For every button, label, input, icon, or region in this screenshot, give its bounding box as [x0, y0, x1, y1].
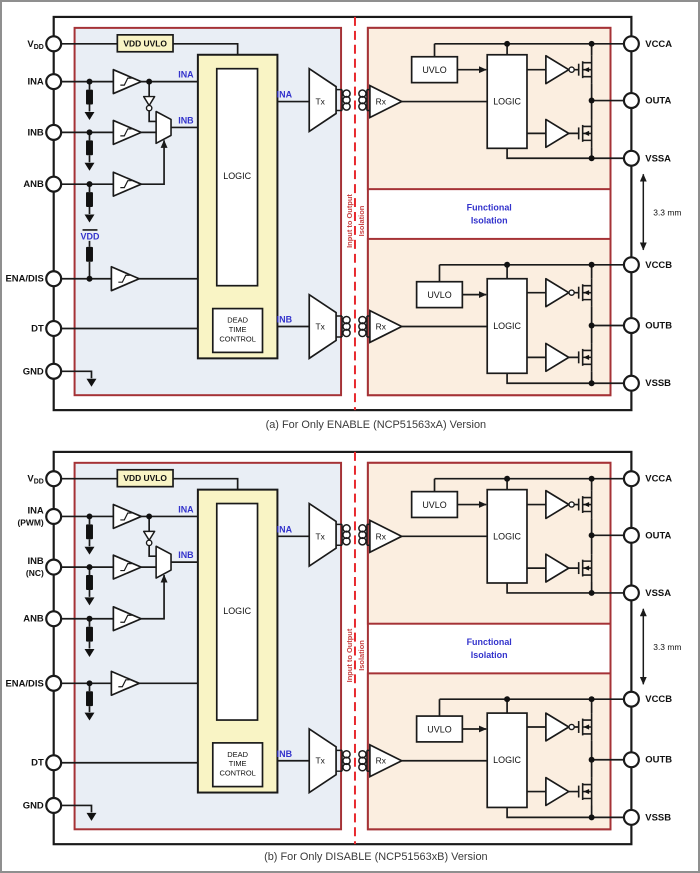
inverter-bubble: [569, 502, 574, 507]
pin-outa: [624, 528, 639, 543]
pin-label-vccb: VCCB: [645, 260, 672, 271]
signal-inb-tx: INB: [277, 749, 293, 759]
signal-ina: INA: [178, 504, 194, 514]
vdd-uvlo-label: VDD UVLO: [123, 38, 167, 48]
signal-ina-tx: INA: [277, 524, 293, 534]
pin-gnd: [46, 798, 61, 813]
rx-label-a: Rx: [376, 97, 387, 107]
pin-label-ena-dis: ENA/DIS: [6, 274, 44, 285]
figure-frame: 3.3 mm VDD INA INB ANB ENA/DIS DT GND VC…: [0, 0, 700, 873]
pin-label-vdd: VDD: [27, 39, 43, 51]
resistor-inb: [86, 140, 93, 155]
functional-isolation-line1: Functional: [467, 637, 512, 647]
uvlo-label-a: UVLO: [422, 65, 446, 75]
logic-label-a: LOGIC: [493, 531, 521, 541]
pin-label-ina: INA: [27, 505, 43, 516]
pin-label-outb: OUTB: [645, 755, 672, 766]
pin-gnd: [46, 364, 61, 379]
pin-outa: [624, 93, 639, 108]
dead-time-label: CONTROL: [219, 334, 255, 343]
dead-time-label: DEAD: [227, 316, 248, 325]
pin-inb: [46, 125, 61, 140]
pin-label-vcca: VCCA: [645, 474, 672, 485]
caption-b: (b) For Only DISABLE (NCP51563xB) Versio…: [264, 851, 488, 863]
pin-label-vccb: VCCB: [645, 694, 672, 705]
uvlo-label-b: UVLO: [427, 724, 451, 734]
dead-time-label: CONTROL: [219, 769, 255, 778]
pin-label-ena-dis: ENA/DIS: [5, 678, 43, 689]
pin-anb: [46, 177, 61, 192]
pin-label-gnd: GND: [23, 800, 44, 811]
pin-label-vssa: VSSA: [645, 153, 671, 164]
dimension-label: 3.3 mm: [653, 208, 681, 218]
rx-label-a: Rx: [376, 531, 387, 541]
functional-isolation-line1: Functional: [467, 203, 512, 213]
functional-isolation-line2: Isolation: [471, 215, 508, 225]
pin-vssa: [624, 151, 639, 166]
logic-label-b: LOGIC: [493, 755, 521, 765]
pin-label-inb: INB: [27, 556, 43, 567]
vdd-uvlo-label: VDD UVLO: [123, 473, 167, 483]
pin-ena-dis: [46, 271, 61, 286]
pin-anb: [46, 611, 61, 626]
pin-label-vdd: VDD: [27, 474, 43, 486]
uvlo-label-b: UVLO: [427, 290, 451, 300]
resistor-ena-pulldown: [86, 691, 93, 706]
pin-label-outb: OUTB: [645, 320, 672, 331]
pin-vssb: [624, 376, 639, 391]
diagram-a: 3.3 mm VDD INA INB ANB ENA/DIS DT GND VC…: [2, 2, 698, 437]
pin-vssb: [624, 810, 639, 825]
signal-ina-tx: INA: [277, 90, 293, 100]
pin-label-vssb: VSSB: [645, 378, 671, 389]
pin-label-vcca: VCCA: [645, 39, 672, 50]
pin-label-gnd: GND: [23, 366, 44, 377]
pin-label-anb: ANB: [23, 179, 44, 190]
caption-a: (a) For Only ENABLE (NCP51563xA) Version: [266, 419, 487, 431]
inverter-bubble: [569, 724, 574, 729]
signal-inb: INB: [178, 550, 194, 560]
vdd-pullup-label: VDD: [81, 231, 100, 241]
tx-label-b: Tx: [315, 756, 325, 766]
uvlo-label-a: UVLO: [422, 500, 446, 510]
pin-label-inb: INB: [28, 127, 44, 138]
pin-dt: [46, 755, 61, 770]
dimension-label: 3.3 mm: [653, 642, 681, 652]
pin-label-vssa: VSSA: [645, 588, 671, 599]
pin-vssa: [624, 585, 639, 600]
pin-ena-dis: [46, 676, 61, 691]
isolation-text-line2: Isolation: [357, 205, 366, 236]
logic-label-a: LOGIC: [493, 97, 521, 107]
rx-label-b: Rx: [376, 756, 387, 766]
pin-label-ina-sub: (PWM): [17, 517, 43, 527]
resistor-ena-pullup: [86, 247, 93, 262]
pin-dt: [46, 321, 61, 336]
pin-vccb: [624, 257, 639, 272]
tx-label-a: Tx: [315, 531, 325, 541]
pin-label-vssb: VSSB: [645, 812, 671, 823]
rx-label-b: Rx: [376, 321, 387, 331]
logic-input-label: LOGIC: [223, 606, 251, 616]
logic-label-b: LOGIC: [493, 321, 521, 331]
isolation-regions: [75, 17, 611, 410]
tx-label-b: Tx: [315, 321, 325, 331]
isolation-regions: [75, 452, 611, 844]
pin-ina: [46, 509, 61, 524]
logic-input-label: LOGIC: [223, 171, 251, 181]
pin-vdd: [46, 471, 61, 486]
functional-isolation-line2: Isolation: [471, 650, 508, 660]
signal-ina: INA: [178, 70, 194, 80]
isolation-text-line1: Input to Output: [345, 628, 354, 682]
tx-label-a: Tx: [315, 97, 325, 107]
dead-time-label: TIME: [229, 759, 247, 768]
inverter-bubble: [569, 290, 574, 295]
resistor-inb: [86, 575, 93, 590]
pin-label-dt: DT: [31, 323, 44, 334]
pin-label-outa: OUTA: [645, 96, 671, 107]
dimension-annotation: 3.3 mm: [643, 174, 681, 250]
dead-time-label: TIME: [229, 325, 247, 334]
resistor-ina: [86, 524, 93, 539]
signal-inb-tx: INB: [277, 315, 293, 325]
resistor-anb: [86, 192, 93, 207]
pin-label-ina: INA: [28, 77, 44, 88]
signal-inb: INB: [178, 115, 194, 125]
pin-label-dt: DT: [31, 758, 44, 769]
pin-label-inb-sub: (NC): [26, 568, 44, 578]
inverter-bubble: [569, 67, 574, 72]
isolation-text-line1: Input to Output: [345, 194, 354, 248]
diagram-b: 3.3 mm VDD INA (PWM) INB (NC) ANB ENA/DI…: [2, 437, 698, 871]
pin-vdd: [46, 36, 61, 51]
resistor-anb: [86, 627, 93, 642]
isolation-text-line2: Isolation: [357, 640, 366, 671]
pin-outb: [624, 318, 639, 333]
dimension-annotation: 3.3 mm: [643, 609, 681, 684]
pin-vcca: [624, 36, 639, 51]
pin-outb: [624, 752, 639, 767]
pin-vcca: [624, 471, 639, 486]
pin-label-anb: ANB: [23, 614, 44, 625]
resistor-ina: [86, 90, 93, 105]
pin-vccb: [624, 692, 639, 707]
pin-inb: [46, 560, 61, 575]
dead-time-label: DEAD: [227, 750, 248, 759]
pin-label-outa: OUTA: [645, 530, 671, 541]
pin-ina: [46, 74, 61, 89]
